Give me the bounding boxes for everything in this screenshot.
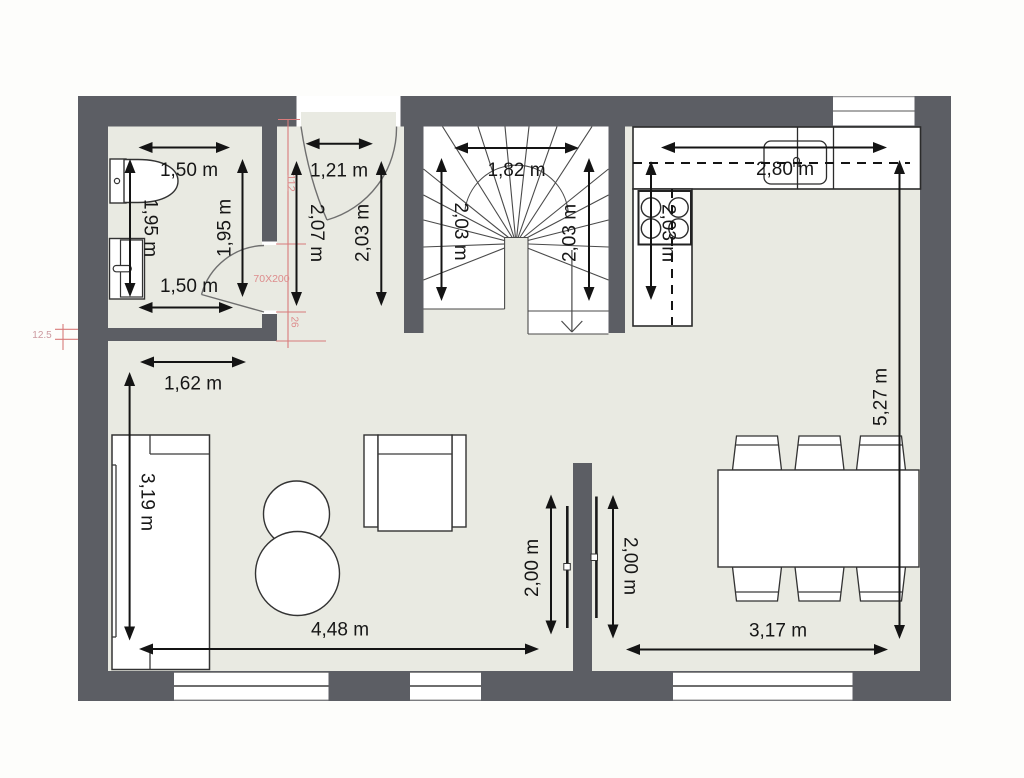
svg-text:1,21 m: 1,21 m	[310, 161, 368, 182]
svg-text:1,95 m: 1,95 m	[139, 199, 160, 257]
svg-text:2,07 m: 2,07 m	[306, 204, 327, 262]
svg-text:1,95 m: 1,95 m	[215, 199, 236, 257]
svg-text:2,00 m: 2,00 m	[619, 537, 640, 595]
svg-text:12.5: 12.5	[32, 330, 52, 341]
svg-text:2,00 m: 2,00 m	[522, 539, 543, 597]
svg-text:2,03 m: 2,03 m	[657, 204, 678, 262]
svg-text:1,82 m: 1,82 m	[487, 160, 545, 181]
svg-text:5,27 m: 5,27 m	[871, 368, 892, 426]
svg-text:70X200: 70X200	[253, 273, 289, 285]
svg-text:26: 26	[289, 316, 300, 328]
svg-text:2,03 m: 2,03 m	[353, 204, 374, 262]
svg-text:3,19 m: 3,19 m	[137, 473, 158, 531]
svg-text:3,17 m: 3,17 m	[749, 621, 807, 642]
svg-text:112: 112	[285, 174, 297, 192]
svg-text:1,62 m: 1,62 m	[164, 374, 222, 395]
svg-text:2,03 m: 2,03 m	[450, 202, 471, 260]
svg-text:4,48 m: 4,48 m	[311, 620, 369, 641]
svg-text:1,50 m: 1,50 m	[160, 276, 218, 297]
svg-text:2,03 m: 2,03 m	[560, 204, 581, 262]
svg-text:1,50 m: 1,50 m	[160, 160, 218, 181]
